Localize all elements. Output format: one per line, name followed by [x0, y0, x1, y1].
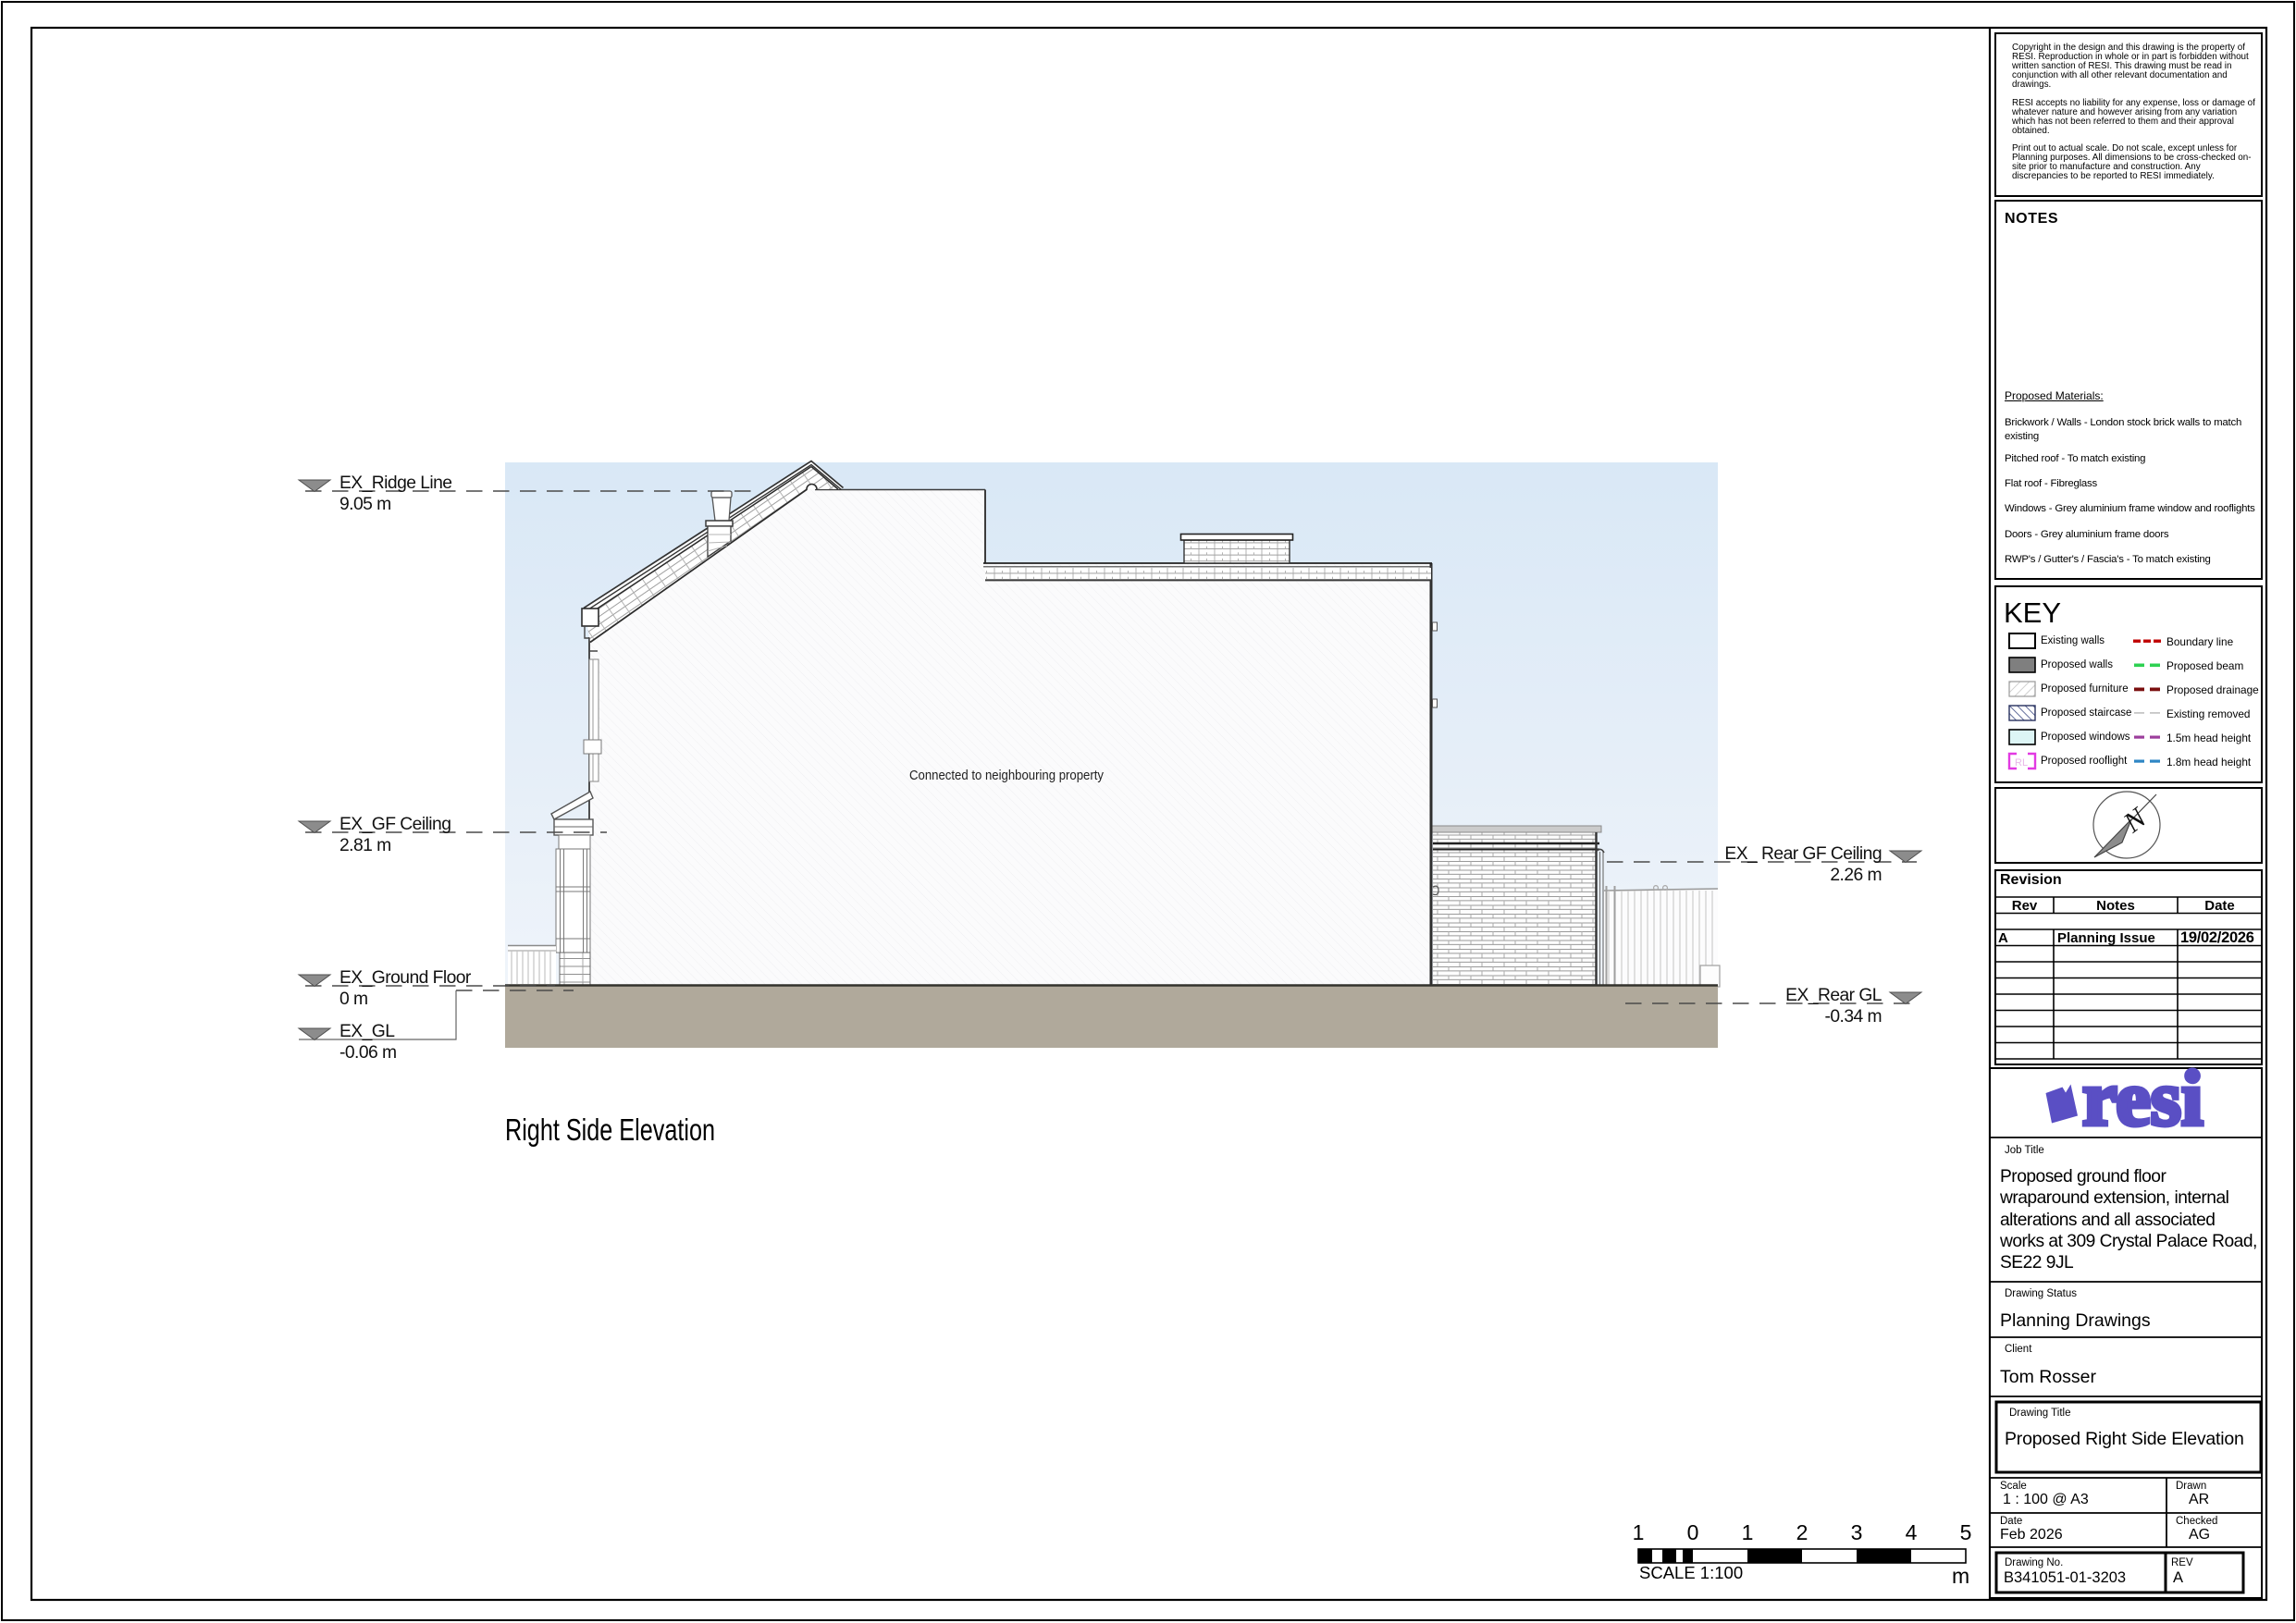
svg-text:1: 1: [1633, 1520, 1645, 1544]
svg-text:EX_GF Ceiling: EX_GF Ceiling: [339, 815, 451, 834]
svg-text:2: 2: [1796, 1520, 1808, 1544]
svg-text:-0.06 m: -0.06 m: [339, 1043, 397, 1063]
svg-text:EX_Rear GL: EX_Rear GL: [1785, 986, 1882, 1005]
svg-text:resi: resi: [2082, 1055, 2203, 1142]
svg-text:EX_ Rear GF Ceiling: EX_ Rear GF Ceiling: [1724, 844, 1882, 864]
svg-text:Right Side Elevation: Right Side Elevation: [505, 1113, 715, 1147]
svg-text:EX_Ridge Line: EX_Ridge Line: [339, 473, 451, 493]
svg-text:5: 5: [1960, 1520, 1972, 1544]
svg-text:EX_Ground Floor: EX_Ground Floor: [339, 968, 472, 988]
svg-text:2.81 m: 2.81 m: [339, 836, 391, 855]
svg-text:0 m: 0 m: [339, 990, 368, 1009]
svg-text:2.26 m: 2.26 m: [1830, 866, 1882, 885]
svg-text:3: 3: [1851, 1520, 1863, 1544]
svg-text:-0.34 m: -0.34 m: [1824, 1007, 1882, 1027]
svg-text:RL: RL: [2015, 757, 2028, 768]
svg-text:SCALE 1:100: SCALE 1:100: [1639, 1563, 1743, 1582]
svg-text:EX_GL: EX_GL: [339, 1022, 395, 1041]
svg-text:Connected to neighbouring prop: Connected to neighbouring property: [909, 768, 1105, 783]
svg-text:m: m: [1952, 1564, 1969, 1588]
svg-text:1: 1: [1742, 1520, 1754, 1544]
svg-text:9.05 m: 9.05 m: [339, 495, 391, 514]
svg-text:4: 4: [1906, 1520, 1918, 1544]
svg-text:0: 0: [1687, 1520, 1699, 1544]
